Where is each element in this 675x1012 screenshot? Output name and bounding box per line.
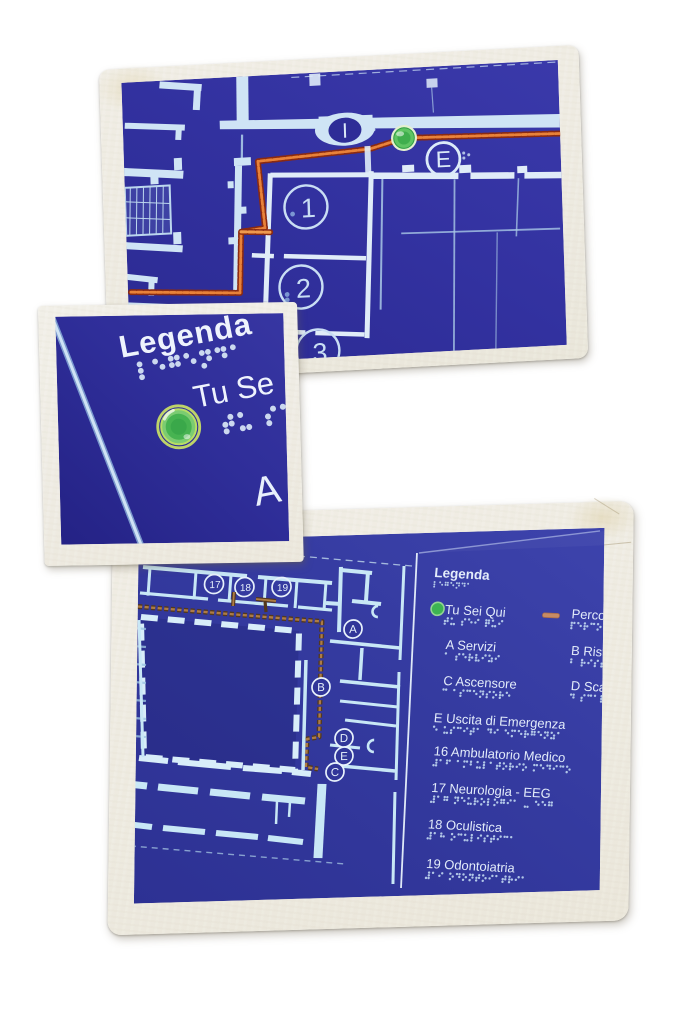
svg-text:I: I [342,120,349,143]
svg-text:3: 3 [312,337,328,367]
svg-text:D: D [340,733,348,745]
svg-text:E: E [340,751,348,763]
svg-text:A: A [349,624,357,636]
svg-text:17: 17 [209,580,221,591]
svg-text:C: C [331,767,339,779]
svg-text:1: 1 [300,193,316,224]
svg-text:19: 19 [277,583,289,594]
svg-text:E: E [435,146,451,173]
svg-text:A Servizi: A Servizi [445,637,497,655]
svg-text:D Scale: D Scale [570,678,604,695]
svg-text:Percorso: Percorso [571,606,605,624]
svg-text:Tu Sei Qui: Tu Sei Qui [444,602,506,620]
svg-text:B Ristoro: B Ristoro [571,643,605,661]
svg-text:2: 2 [295,273,311,304]
svg-text:Legenda: Legenda [434,565,491,583]
svg-text:B: B [317,682,325,694]
svg-text:18: 18 [240,583,252,594]
